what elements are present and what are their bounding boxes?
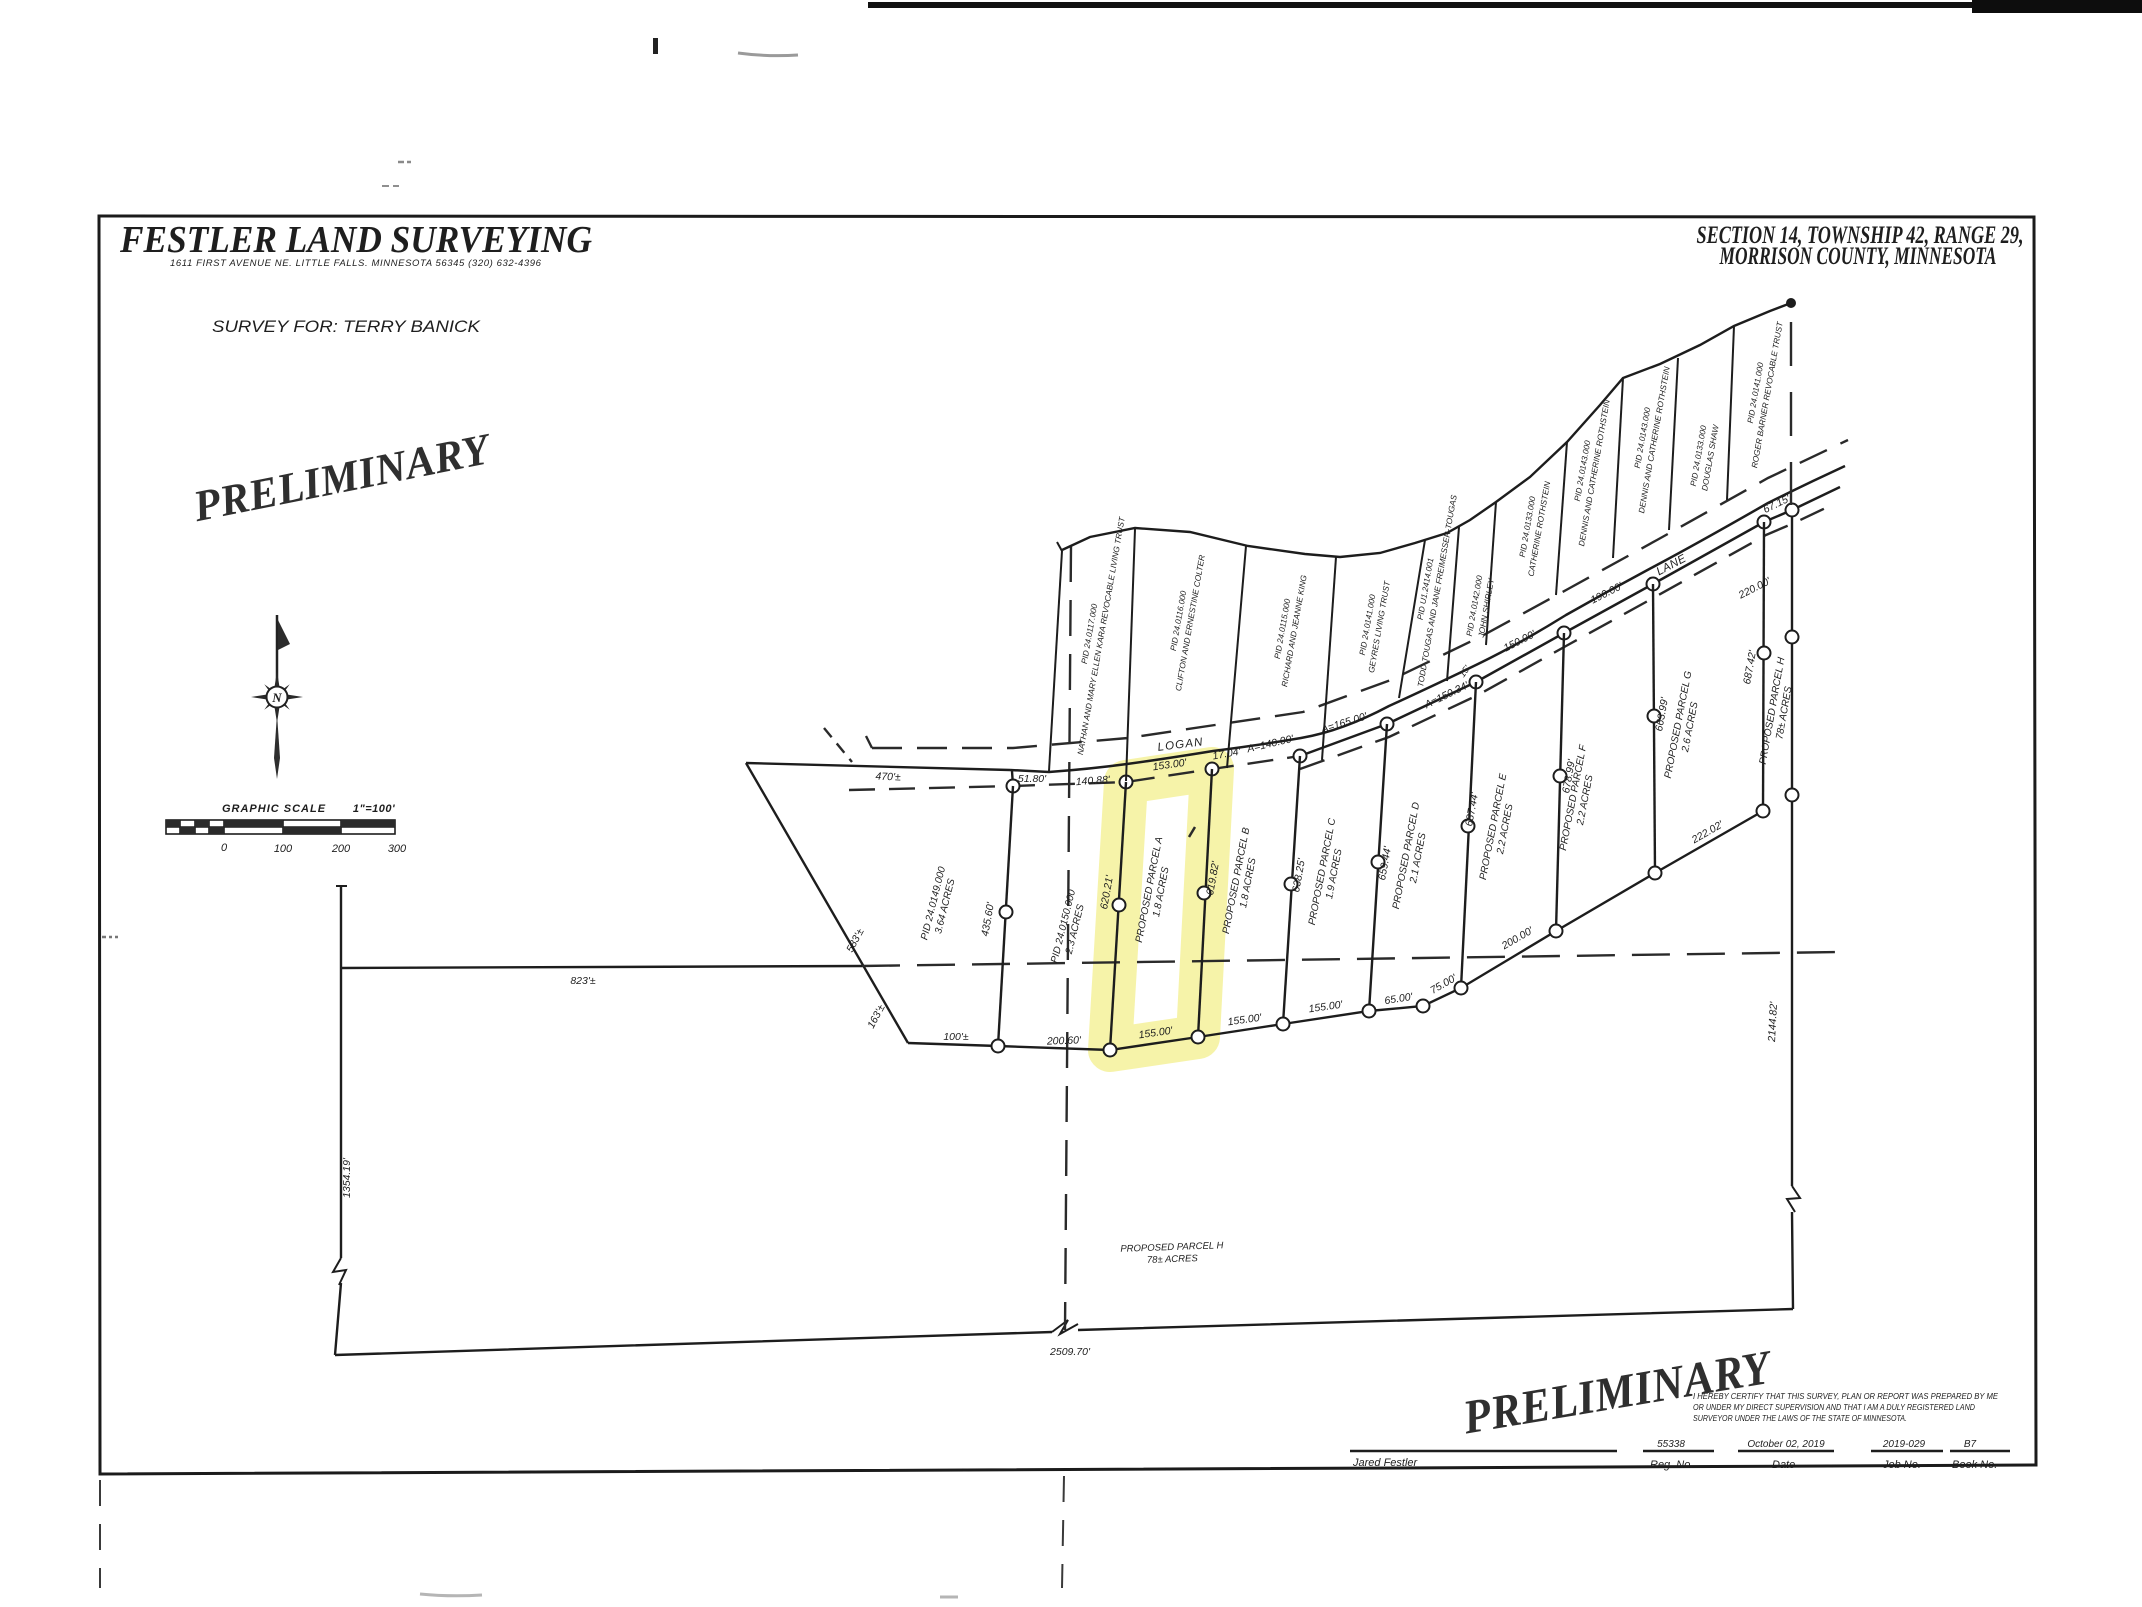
svg-text:78± ACRES: 78± ACRES xyxy=(1147,1253,1199,1266)
svg-text:GRAPHIC SCALE: GRAPHIC SCALE xyxy=(222,803,326,815)
svg-text:B7: B7 xyxy=(1964,1439,1977,1450)
svg-text:0: 0 xyxy=(221,842,228,854)
svg-text:51.80': 51.80' xyxy=(1018,773,1047,785)
svg-text:1354.19': 1354.19' xyxy=(341,1157,353,1198)
svg-text:140.88': 140.88' xyxy=(1075,774,1111,788)
svg-text:FESTLER LAND SURVEYING: FESTLER LAND SURVEYING xyxy=(119,219,592,261)
svg-text:200: 200 xyxy=(331,843,351,855)
svg-text:2509.70': 2509.70' xyxy=(1049,1346,1091,1358)
svg-text:Book No.: Book No. xyxy=(1952,1459,1997,1471)
svg-text:Jared Festler: Jared Festler xyxy=(1352,1457,1419,1469)
svg-text:1"=100': 1"=100' xyxy=(353,803,395,815)
svg-text:October 02, 2019: October 02, 2019 xyxy=(1747,1439,1825,1450)
svg-text:100: 100 xyxy=(274,843,293,855)
svg-text:100'±: 100'± xyxy=(943,1031,969,1043)
svg-text:300: 300 xyxy=(388,843,407,855)
svg-text:SURVEYOR UNDER THE LAWS OF THE: SURVEYOR UNDER THE LAWS OF THE STATE OF … xyxy=(1693,1413,1907,1423)
svg-text:MORRISON COUNTY, MINNESOTA: MORRISON COUNTY, MINNESOTA xyxy=(1719,243,1997,270)
svg-text:470'±: 470'± xyxy=(875,771,901,784)
svg-text:1611 FIRST AVENUE NE. LITTLE: 1611 FIRST AVENUE NE. LITTLE FALLS. MINN… xyxy=(170,258,542,269)
svg-text:Reg. No.: Reg. No. xyxy=(1650,1459,1693,1471)
svg-text:55338: 55338 xyxy=(1657,1439,1685,1450)
svg-text:Job No.: Job No. xyxy=(1882,1459,1921,1471)
svg-text:Date: Date xyxy=(1772,1459,1795,1471)
svg-text:2019-029: 2019-029 xyxy=(1882,1439,1926,1450)
svg-text:2144.82': 2144.82' xyxy=(1766,1001,1780,1044)
svg-text:SURVEY FOR: TERRY BANICK: SURVEY FOR: TERRY BANICK xyxy=(212,318,481,336)
svg-text:I HEREBY CERTIFY THAT THIS SUR: I HEREBY CERTIFY THAT THIS SURVEY, PLAN … xyxy=(1693,1391,1998,1401)
svg-text:200.60': 200.60' xyxy=(1046,1034,1083,1047)
svg-text:N: N xyxy=(271,690,282,705)
svg-text:OR UNDER MY DIRECT SUPERVISION: OR UNDER MY DIRECT SUPERVISION AND THAT … xyxy=(1693,1402,1975,1412)
svg-text:823'±: 823'± xyxy=(570,975,596,987)
